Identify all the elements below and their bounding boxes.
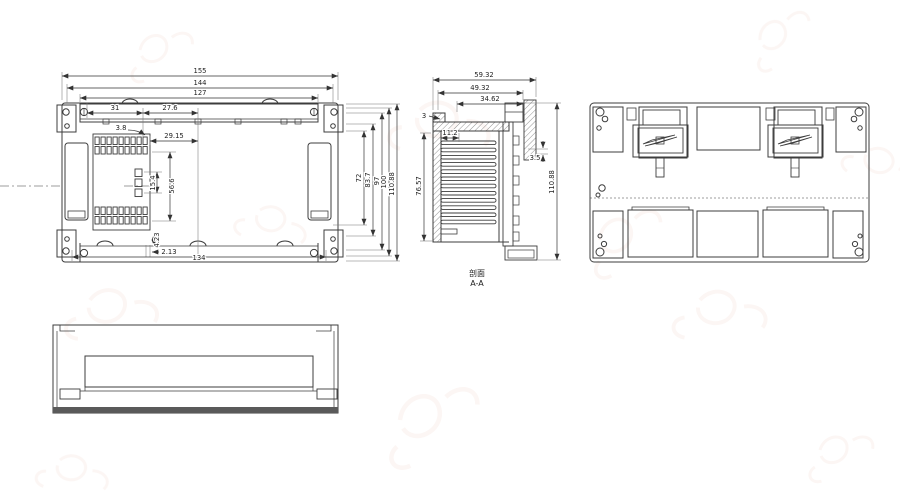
rear-holes [596, 185, 863, 256]
right-slot [308, 143, 331, 220]
dim-rail-width: 127 [194, 89, 207, 97]
dim-inner-width: 134 [193, 254, 206, 262]
dim-bottom-offset-v: 4.23 [153, 232, 161, 247]
dim-depth-mid: 49.32 [470, 84, 489, 92]
dim-terminal-span: 29.15 [164, 132, 183, 140]
dim-mount-width: 144 [194, 79, 207, 87]
spring-symbol [643, 135, 677, 146]
left-wall [433, 131, 441, 242]
front-extension-lines [62, 72, 400, 261]
terminal-panel [93, 134, 150, 230]
drawing-canvas: 155 144 127 31 27.6 3.8 29.15 15.4 56.6 … [0, 0, 900, 500]
dim-mid-span: 27.6 [162, 104, 177, 112]
section-view [433, 100, 537, 260]
rear-top-right-panel [836, 107, 866, 152]
dim-height-72: 72 [355, 174, 363, 183]
dim-left-span: 31 [111, 104, 120, 112]
dim-slot-width: 3.8 [116, 124, 127, 132]
bottom-band [53, 407, 338, 413]
bottom-view [53, 325, 338, 413]
dim-connector-span: 15.4 [149, 175, 157, 190]
center-connectors [135, 169, 142, 197]
dim-overall-height: 110.88 [388, 172, 396, 196]
front-dimension-labels: 155 144 127 31 27.6 3.8 29.15 15.4 56.6 … [111, 67, 396, 262]
dim-height-83-7: 83.7 [364, 172, 372, 187]
dim-depth-overall: 59.32 [474, 71, 493, 79]
cooling-fins [441, 141, 496, 224]
din-clip-module-2 [768, 107, 823, 177]
mounting-ears [57, 105, 343, 257]
dim-terminal-height: 56.6 [168, 178, 176, 193]
bottom-outline [53, 325, 338, 413]
enclosure-outline [62, 103, 338, 262]
left-slot [65, 143, 88, 220]
dim-height-100: 100 [380, 176, 388, 189]
dim-bottom-offset-h: 2.13 [161, 248, 176, 256]
terminal-row-top [95, 137, 147, 154]
rear-top-center-recess [697, 107, 760, 150]
dim-depth-inner: 34.62 [480, 95, 499, 103]
dim-clip-gap: 3.5 [530, 154, 541, 162]
section-title: 剖面 [469, 268, 485, 278]
display-window [85, 356, 313, 387]
terminal-row-bottom [95, 207, 147, 224]
section-title-aa: A-A [470, 279, 484, 288]
dim-overall-width: 155 [194, 67, 207, 75]
dim-section-overall-height: 110.88 [548, 170, 556, 194]
dim-flange-depth: 11.2 [442, 129, 457, 137]
left-foot [60, 389, 80, 399]
rear-bottom-recesses [593, 207, 863, 258]
dim-wall-thickness: 3 [422, 112, 426, 120]
technical-drawing: 155 144 127 31 27.6 3.8 29.15 15.4 56.6 … [0, 0, 900, 500]
rear-top-left-panel [593, 107, 623, 152]
dim-body-height: 76.57 [415, 176, 423, 195]
spring-symbol [778, 135, 812, 146]
din-clip-module-1 [633, 107, 688, 177]
